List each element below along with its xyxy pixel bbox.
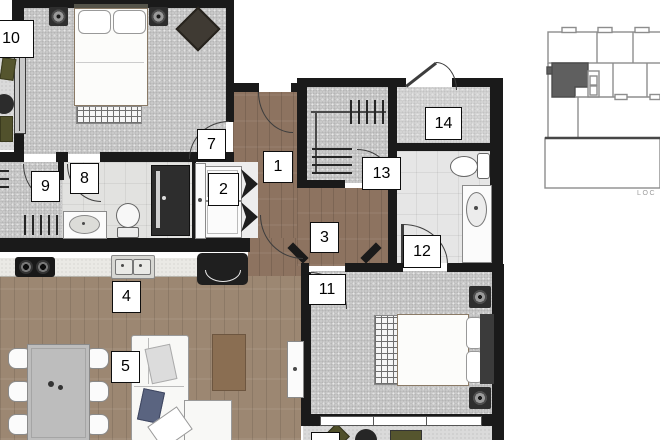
washer-icon: [203, 201, 242, 238]
coffee-table-icon: [212, 334, 246, 391]
room-label-8: 8: [70, 163, 99, 194]
wall: [345, 263, 403, 272]
plant-icon: [390, 430, 422, 440]
room-label-1: 1: [263, 151, 293, 183]
wall: [226, 8, 234, 122]
room-label-text: 7: [207, 136, 216, 154]
room-label-text: 9: [41, 178, 50, 196]
speaker-icon: [469, 286, 491, 308]
wall: [14, 132, 24, 154]
speaker-icon: [469, 387, 491, 409]
shoe-rack-hatch-icon: [24, 215, 58, 235]
room-label-4: 4: [112, 281, 141, 313]
headboard: [480, 314, 494, 384]
room-label-text: 3: [320, 229, 329, 247]
wall: [297, 180, 345, 188]
pillow-icon: [113, 10, 146, 34]
room-label-text: 1: [274, 158, 283, 176]
sink-icon: [63, 211, 107, 239]
room-label-2: 2: [208, 173, 239, 206]
room-label-text: 5: [121, 358, 130, 376]
mattress: [397, 314, 469, 386]
wall: [56, 152, 68, 162]
hanger-hatch-icon: [312, 147, 352, 174]
room-label-text: 11: [319, 281, 336, 299]
speaker-icon: [149, 7, 168, 26]
plant-icon: [0, 116, 13, 142]
hanger-hatch-icon: [350, 100, 386, 124]
door-arc-icon: [436, 62, 457, 90]
room-label-text: 4: [122, 288, 131, 306]
room-label-text: 2: [219, 181, 228, 199]
vanity-icon: [462, 185, 492, 263]
bed-icon: [74, 4, 148, 106]
room-label-5: 5: [111, 351, 140, 383]
room-label-14: 14: [425, 107, 462, 140]
key-map-caption: LOC: [637, 190, 656, 197]
room-label-9: 9: [31, 171, 60, 202]
key-map-icon: [542, 24, 660, 194]
room-label-text: 13: [373, 165, 391, 183]
room-label-text: 12: [413, 243, 431, 261]
window-icon: [320, 416, 482, 426]
room-label-7: 7: [197, 129, 226, 160]
wall: [395, 143, 490, 151]
room-label-text: 14: [435, 115, 453, 133]
speaker-icon: [49, 7, 68, 26]
door-leaf: [405, 62, 436, 87]
room-label-10: 10: [0, 20, 34, 58]
room-label-3: 3: [310, 222, 339, 253]
kitchen-sink-icon: [111, 255, 155, 279]
room-label-text: 10: [2, 30, 20, 48]
wall: [0, 238, 250, 252]
door-leaf: [195, 163, 206, 239]
room-label-partial: [311, 432, 340, 440]
wall: [233, 83, 259, 92]
wall: [297, 78, 406, 87]
sofa-chaise: [184, 400, 232, 440]
toilet-icon: [116, 203, 141, 238]
cooktop-icon: [15, 257, 55, 277]
room-label-12: 12: [403, 235, 441, 268]
wall: [447, 263, 492, 272]
room-label-13: 13: [362, 157, 401, 190]
wall: [297, 83, 307, 188]
shoe-rack-hatch-icon: [0, 164, 9, 188]
toilet-icon: [450, 153, 490, 179]
room-label-text: 8: [80, 170, 89, 188]
blanket-fold: [76, 62, 144, 63]
floor-plan: 10 7 1 2 9 8 13 14 12 3 11 4 5: [0, 0, 660, 440]
bench-icon: [197, 253, 248, 285]
rug-icon: [374, 315, 399, 385]
wall: [301, 263, 309, 272]
shower-icon: [151, 165, 190, 236]
dining-table-icon: [27, 344, 90, 440]
bed-icon: [374, 314, 494, 386]
room-label-11: 11: [308, 274, 346, 305]
wall: [0, 152, 24, 162]
rug-icon: [76, 106, 142, 124]
sliding-door-icon: [14, 56, 26, 134]
pillow-icon: [78, 10, 111, 34]
tv-cabinet-icon: [287, 341, 304, 398]
